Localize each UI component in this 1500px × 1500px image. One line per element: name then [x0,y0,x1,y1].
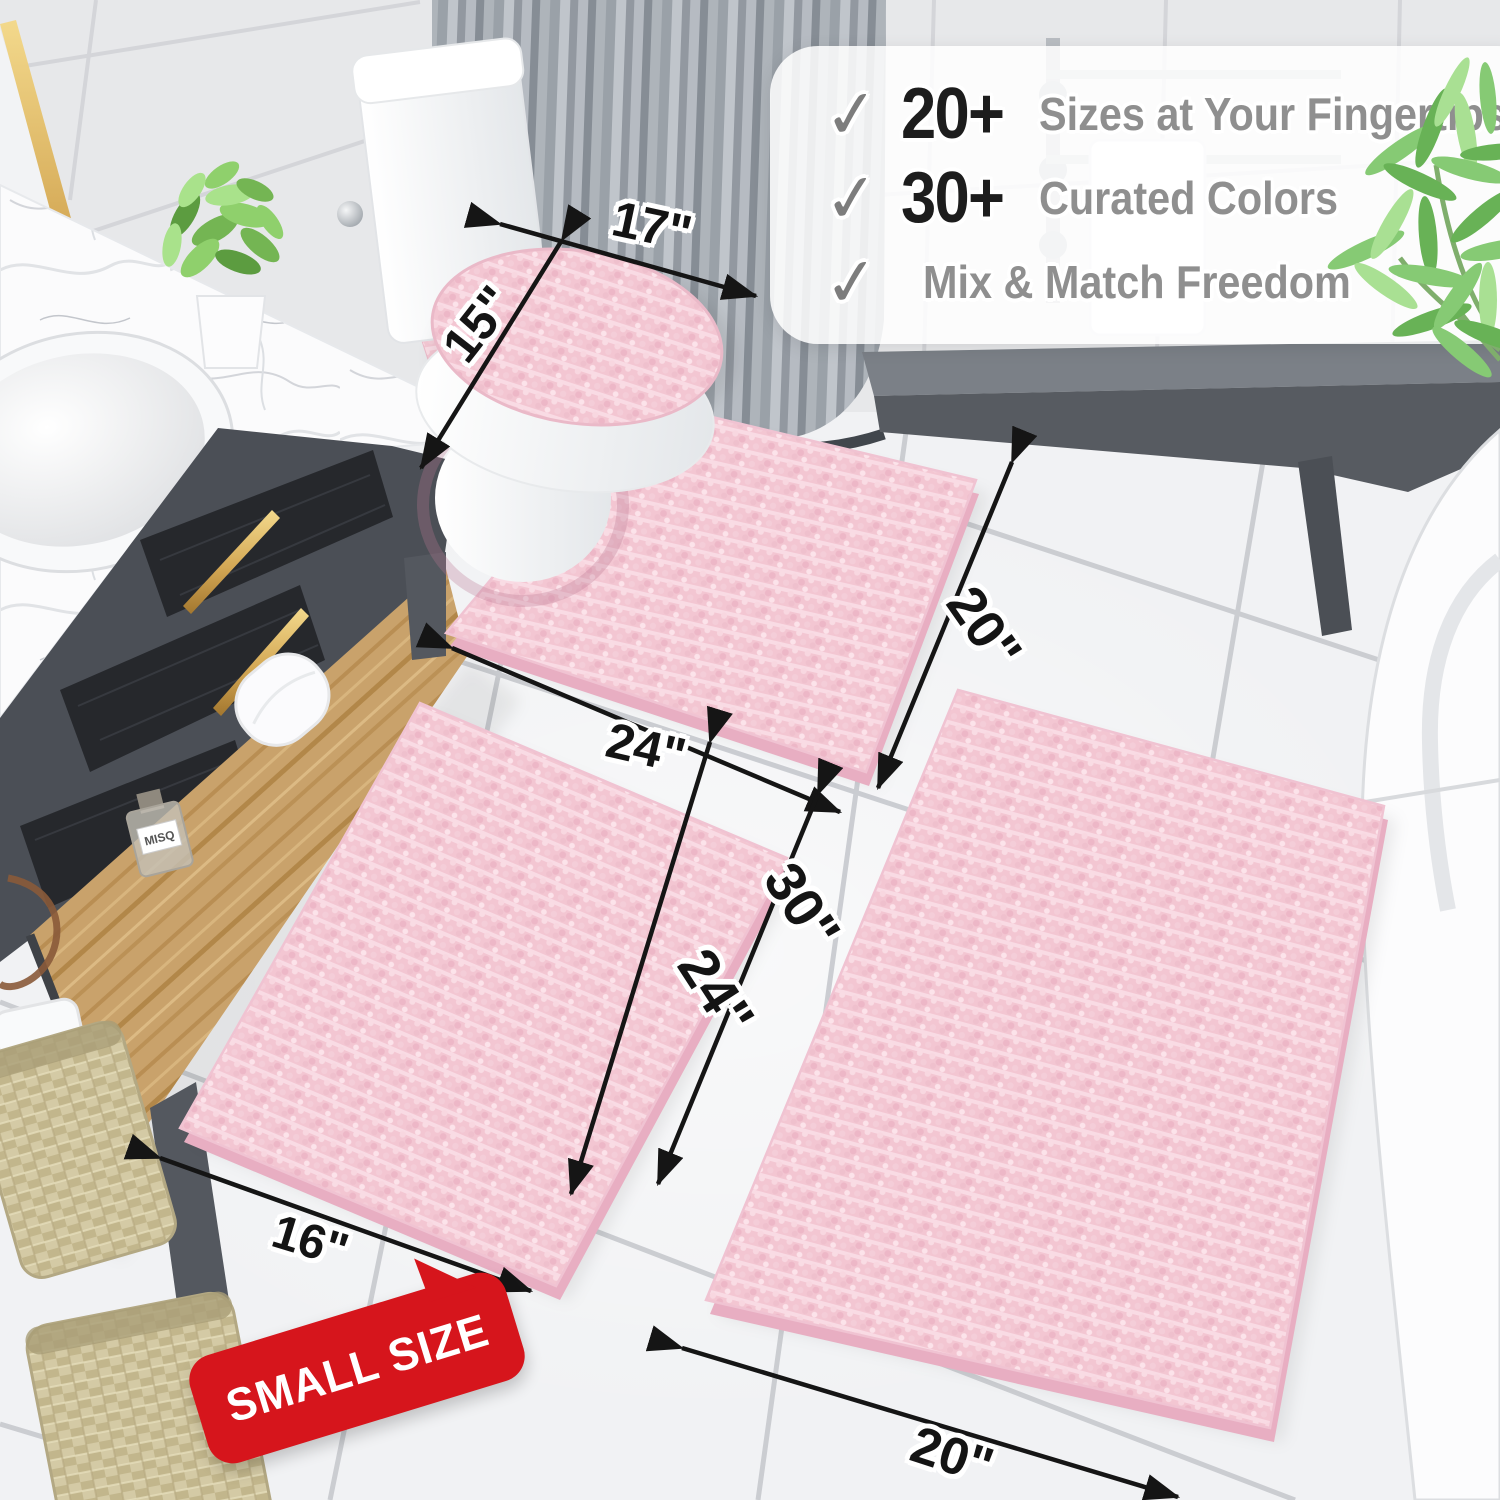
flush-knob [337,201,363,227]
feature-row: ✓ Mix & Match Freedom [770,240,1500,324]
feature-count: 30+ [901,162,1003,234]
feature-label: Mix & Match Freedom [923,259,1351,305]
product-scene: MISQ [0,0,1500,1500]
feature-row: ✓ 30+ Curated Colors [770,156,1500,240]
feature-row: ✓ 20+ Sizes at Your Fingertips [770,72,1500,156]
feature-label: Curated Colors [1039,175,1338,221]
check-icon: ✓ [821,162,883,233]
feature-panel: ✓ 20+ Sizes at Your Fingertips ✓ 30+ Cur… [770,46,1500,344]
plant-pot [197,296,265,368]
check-icon: ✓ [821,246,883,317]
check-icon: ✓ [821,78,883,149]
feature-label: Sizes at Your Fingertips [1039,91,1500,137]
feature-count: 20+ [901,78,1003,150]
